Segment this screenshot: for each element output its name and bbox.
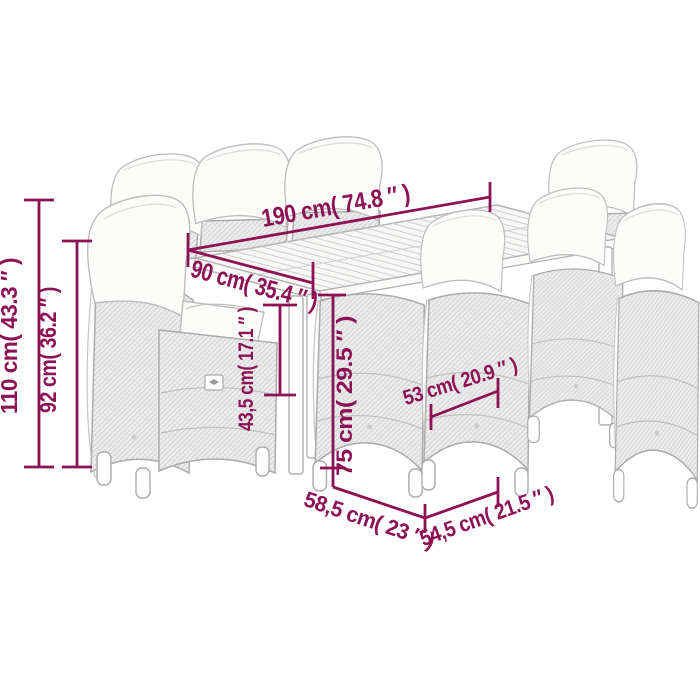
product-dimension-diagram: 190 cm( 74.8 ″ ) 90 cm( 35.4 ″ ) 110 cm(… xyxy=(0,0,700,700)
chair-foot xyxy=(97,452,111,485)
table-leg xyxy=(289,296,303,474)
screw-dot xyxy=(131,434,136,439)
diagram-stage: 190 cm( 74.8 ″ ) 90 cm( 35.4 ″ ) 110 cm(… xyxy=(0,0,700,700)
front-chair-cushion xyxy=(528,188,608,266)
dim-chair-width: 54,5 cm( 21.5 ″ ) xyxy=(416,477,556,551)
recline-latch-icon xyxy=(205,375,223,390)
chair-foot xyxy=(256,447,269,476)
chair-right-end-body xyxy=(614,291,699,508)
front-chair-cushion xyxy=(421,210,505,292)
dim-backrest-height: 92 cm( 36.2 ″ ) xyxy=(35,241,92,467)
dim-label-43-5: 43,5 cm( 17.1 ″ ) xyxy=(235,307,258,431)
dim-label-92: 92 cm( 36.2 ″ ) xyxy=(35,287,61,413)
dim-label-75: 75 cm( 29.5 ″ ) xyxy=(332,316,357,476)
chair-foot xyxy=(136,468,150,498)
chair-right-end-cushion xyxy=(614,204,686,290)
chair-cushion xyxy=(88,195,190,317)
dim-label-54-5: 54,5 cm( 21.5 ″ ) xyxy=(416,481,556,551)
dim-label-110: 110 cm( 43.3 ″ ) xyxy=(0,258,22,414)
